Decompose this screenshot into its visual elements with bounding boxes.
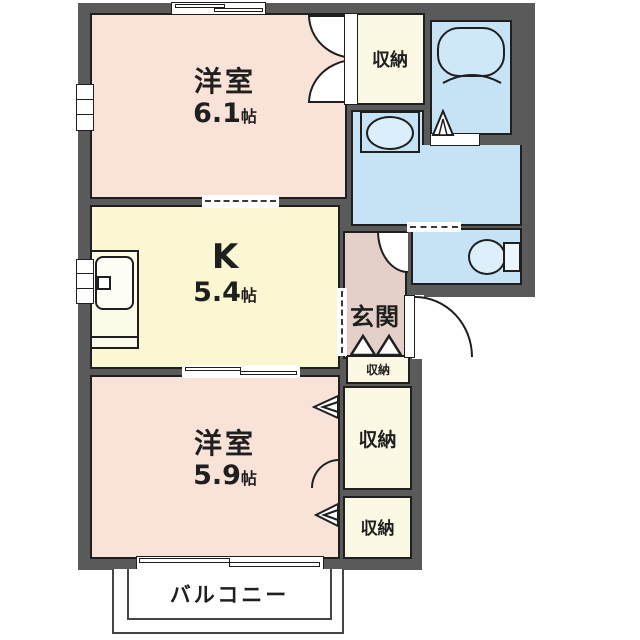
room-size: 6.1 (193, 98, 241, 129)
room-size: 5.9 (193, 460, 241, 491)
bath-folding-door-marker (431, 109, 455, 137)
left-window-bedroom (76, 84, 94, 131)
room-name: 洋室 (194, 428, 256, 460)
room-size-unit: 帖 (241, 287, 257, 305)
window-tick (77, 99, 93, 100)
dashed-line (205, 200, 276, 202)
kitchen-faucet (97, 276, 111, 290)
washbasin-bowl (366, 116, 414, 150)
bedroom-top-label: 洋室 6.1 帖 (130, 66, 320, 129)
floor-plan: バルコニー 洋室 6.1 帖 K 5.4 帖 洋室 5.9 帖 収納 収納 収納… (0, 0, 640, 640)
entrance-door-swing-arc (415, 296, 473, 357)
closet-under-entrance-label: 収納 (348, 361, 408, 377)
window-tick (77, 114, 93, 115)
room-name: K (212, 238, 238, 277)
bedroom-bottom-label: 洋室 5.9 帖 (130, 428, 320, 491)
window-pane-left (139, 558, 230, 563)
dashed-line (410, 226, 458, 228)
window-tick (77, 273, 93, 274)
room-size-unit: 帖 (241, 108, 257, 126)
closet-top-door-frame (344, 13, 358, 105)
balcony-sliding-window (136, 556, 324, 570)
entrance-label: 玄関 (343, 300, 407, 328)
bathtub-curve-line (443, 75, 501, 83)
toilet-tank (503, 242, 521, 272)
bifold-door-marker-bottom (312, 502, 340, 528)
entrance-shoebox-door-marker (350, 333, 402, 357)
window-pane-right (229, 562, 320, 567)
left-window-kitchen (76, 259, 94, 304)
window-tick (77, 288, 93, 289)
closet-top-label: 収納 (357, 47, 423, 71)
closet-middle-label: 収納 (345, 427, 410, 449)
balcony: バルコニー (127, 569, 332, 620)
kitchen-label: K 5.4 帖 (135, 238, 315, 308)
balcony-label: バルコニー (170, 579, 290, 609)
bifold-door-marker-mid (310, 394, 340, 420)
room-size-unit: 帖 (241, 470, 257, 488)
closet-bottom-label: 収納 (345, 516, 410, 536)
sliding-door-washroom-toilet (407, 222, 461, 232)
top-window (171, 2, 266, 15)
window-pane-right (214, 8, 263, 12)
washroom (351, 145, 522, 226)
kitchen-counter-divider (92, 336, 137, 338)
slide-pane-right (240, 371, 297, 375)
bathtub-edge-curve (441, 66, 503, 88)
sliding-door-bedroom-kitchen (202, 195, 279, 208)
room-name: 洋室 (194, 66, 256, 98)
triangle-right (377, 336, 401, 355)
triangle-left (351, 336, 375, 355)
slide-pane-left (185, 367, 241, 371)
sliding-partition-kitchen-bedroom (182, 365, 300, 378)
room-size: 5.4 (193, 277, 241, 308)
chevron-outer (316, 504, 338, 526)
toilet-bowl (468, 239, 506, 275)
